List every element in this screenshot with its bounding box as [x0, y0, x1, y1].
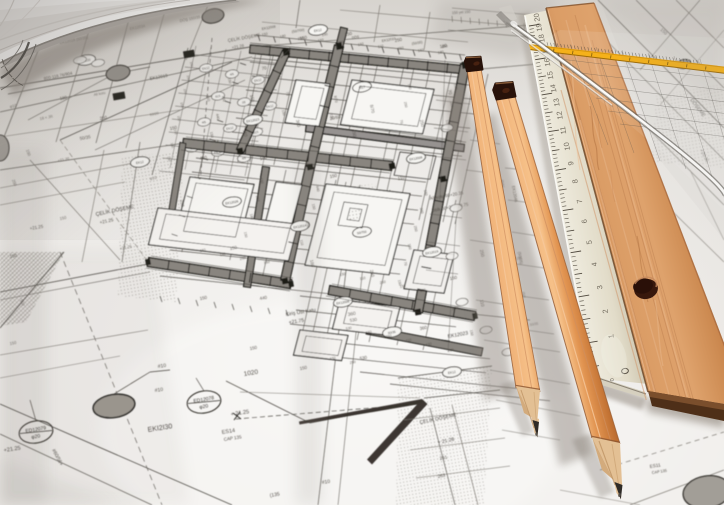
svg-text:70: 70	[403, 261, 408, 266]
svg-text:13: 13	[551, 98, 561, 108]
svg-text:19: 19	[534, 23, 544, 33]
svg-text:12: 12	[555, 111, 565, 121]
svg-text:10: 10	[562, 142, 572, 152]
svg-text:70: 70	[285, 91, 290, 96]
svg-text:11: 11	[558, 126, 568, 135]
svg-text:20: 20	[532, 13, 542, 23]
svg-text:14: 14	[548, 84, 558, 94]
svg-text:15: 15	[545, 71, 555, 81]
svg-text:70: 70	[399, 119, 404, 124]
